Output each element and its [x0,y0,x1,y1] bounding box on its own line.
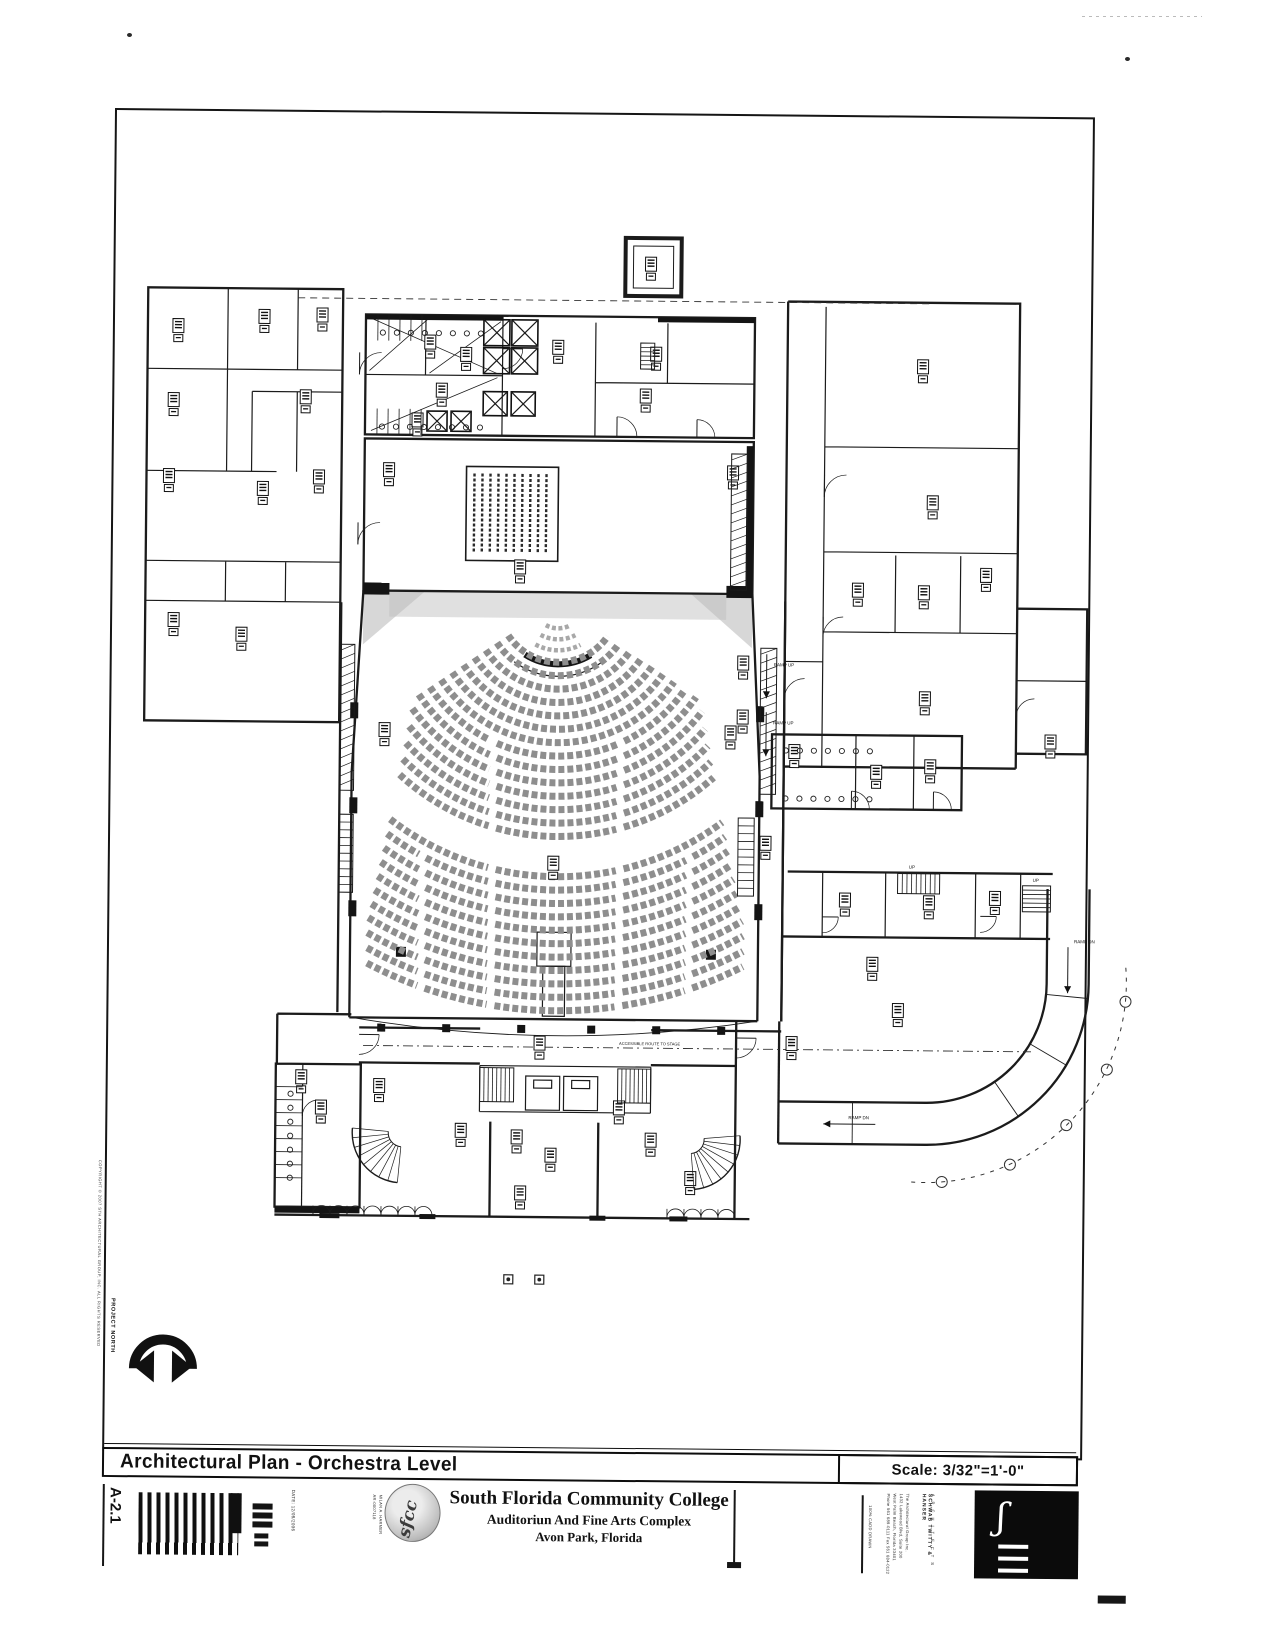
firm-address-line: The Architectural Group Inc. [903,1494,910,1580]
ramp-label: RAMP DN [848,1115,869,1120]
auditorium-seating [366,634,746,1012]
scale-box: Scale: 3/32"=1'-0" [838,1454,1078,1486]
revision-stamp [254,1541,268,1546]
scale-label: Scale: 3/32"=1'-0" [891,1461,1024,1479]
floor-plan-drawing: RAMP UP RAMP UP RAMP DN RAMP DN UP UP AC… [0,0,1275,1649]
firm-address-line: West Palm Beach, Florida 33401 [890,1494,897,1580]
titleblock-tick [727,1562,741,1568]
north-arrow-icon [134,1339,192,1383]
firm-address-line: 1432 Lakewood Blvd, Suite 200 [897,1494,904,1580]
sheet-number: A-2.1 [106,1487,124,1565]
ramp-label: RAMP UP [773,720,793,725]
revision-stamp [254,1533,268,1538]
revision-stamp [252,1512,272,1518]
barcode-end-bar [230,1493,241,1533]
project-location: Avon Park, Florida [441,1528,736,1547]
sfcc-logo: sfcc [384,1484,441,1543]
ramp-label: RAMP UP [774,662,794,667]
firm-logo: ʃ [974,1490,1079,1579]
stage-apron [389,591,726,620]
revision-stamp [253,1503,273,1509]
revision-stamp [252,1521,272,1527]
site-columns [504,1275,544,1284]
drawing-title: Architectural Plan - Orchestra Level [120,1451,458,1477]
wall-poche [274,314,768,1223]
north-arrow-label: PROJECT NORTH [109,1298,116,1394]
scanned-drawing-page: RAMP UP RAMP UP RAMP DN RAMP DN UP UP AC… [0,0,1275,1649]
accessible-route-label: ACCESSIBLE ROUTE TO STAGE [619,1041,681,1047]
date-stamp: DATE: 12/08/2006 [289,1490,297,1566]
project-identification: South Florida Community College Auditori… [441,1487,737,1547]
architect-name: MILAN A. HARMER [376,1495,383,1565]
firm-address-line: Phone 561 689-0111 Fax 561 684-0122 [884,1493,891,1579]
up-label: UP [909,865,915,870]
cadd-note: 100% CADD DRAWN [866,1505,873,1569]
drawing-sheet: RAMP UP RAMP UP RAMP DN RAMP DN UP UP AC… [0,0,1275,1649]
walkway-columns [936,994,1131,1189]
registration-block: MILAN A. HARMER AR-0007118 [370,1495,383,1565]
scan-mark [1098,1596,1126,1604]
ramp-label: RAMP DN [1074,939,1095,944]
barcode [138,1492,239,1555]
project-name: Auditoriun And Fine Arts Complex [441,1511,736,1530]
firm-subtitle: A R C H I T E C T S [930,1494,936,1580]
firm-address-block: The Architectural Group Inc. 1432 Lakewo… [884,1493,910,1579]
up-label: UP [1033,878,1039,883]
sfcc-logo-text: sfcc [394,1498,422,1539]
client-name: South Florida Community College [442,1487,737,1512]
firm-logo-mark: ʃ [996,1497,1006,1538]
